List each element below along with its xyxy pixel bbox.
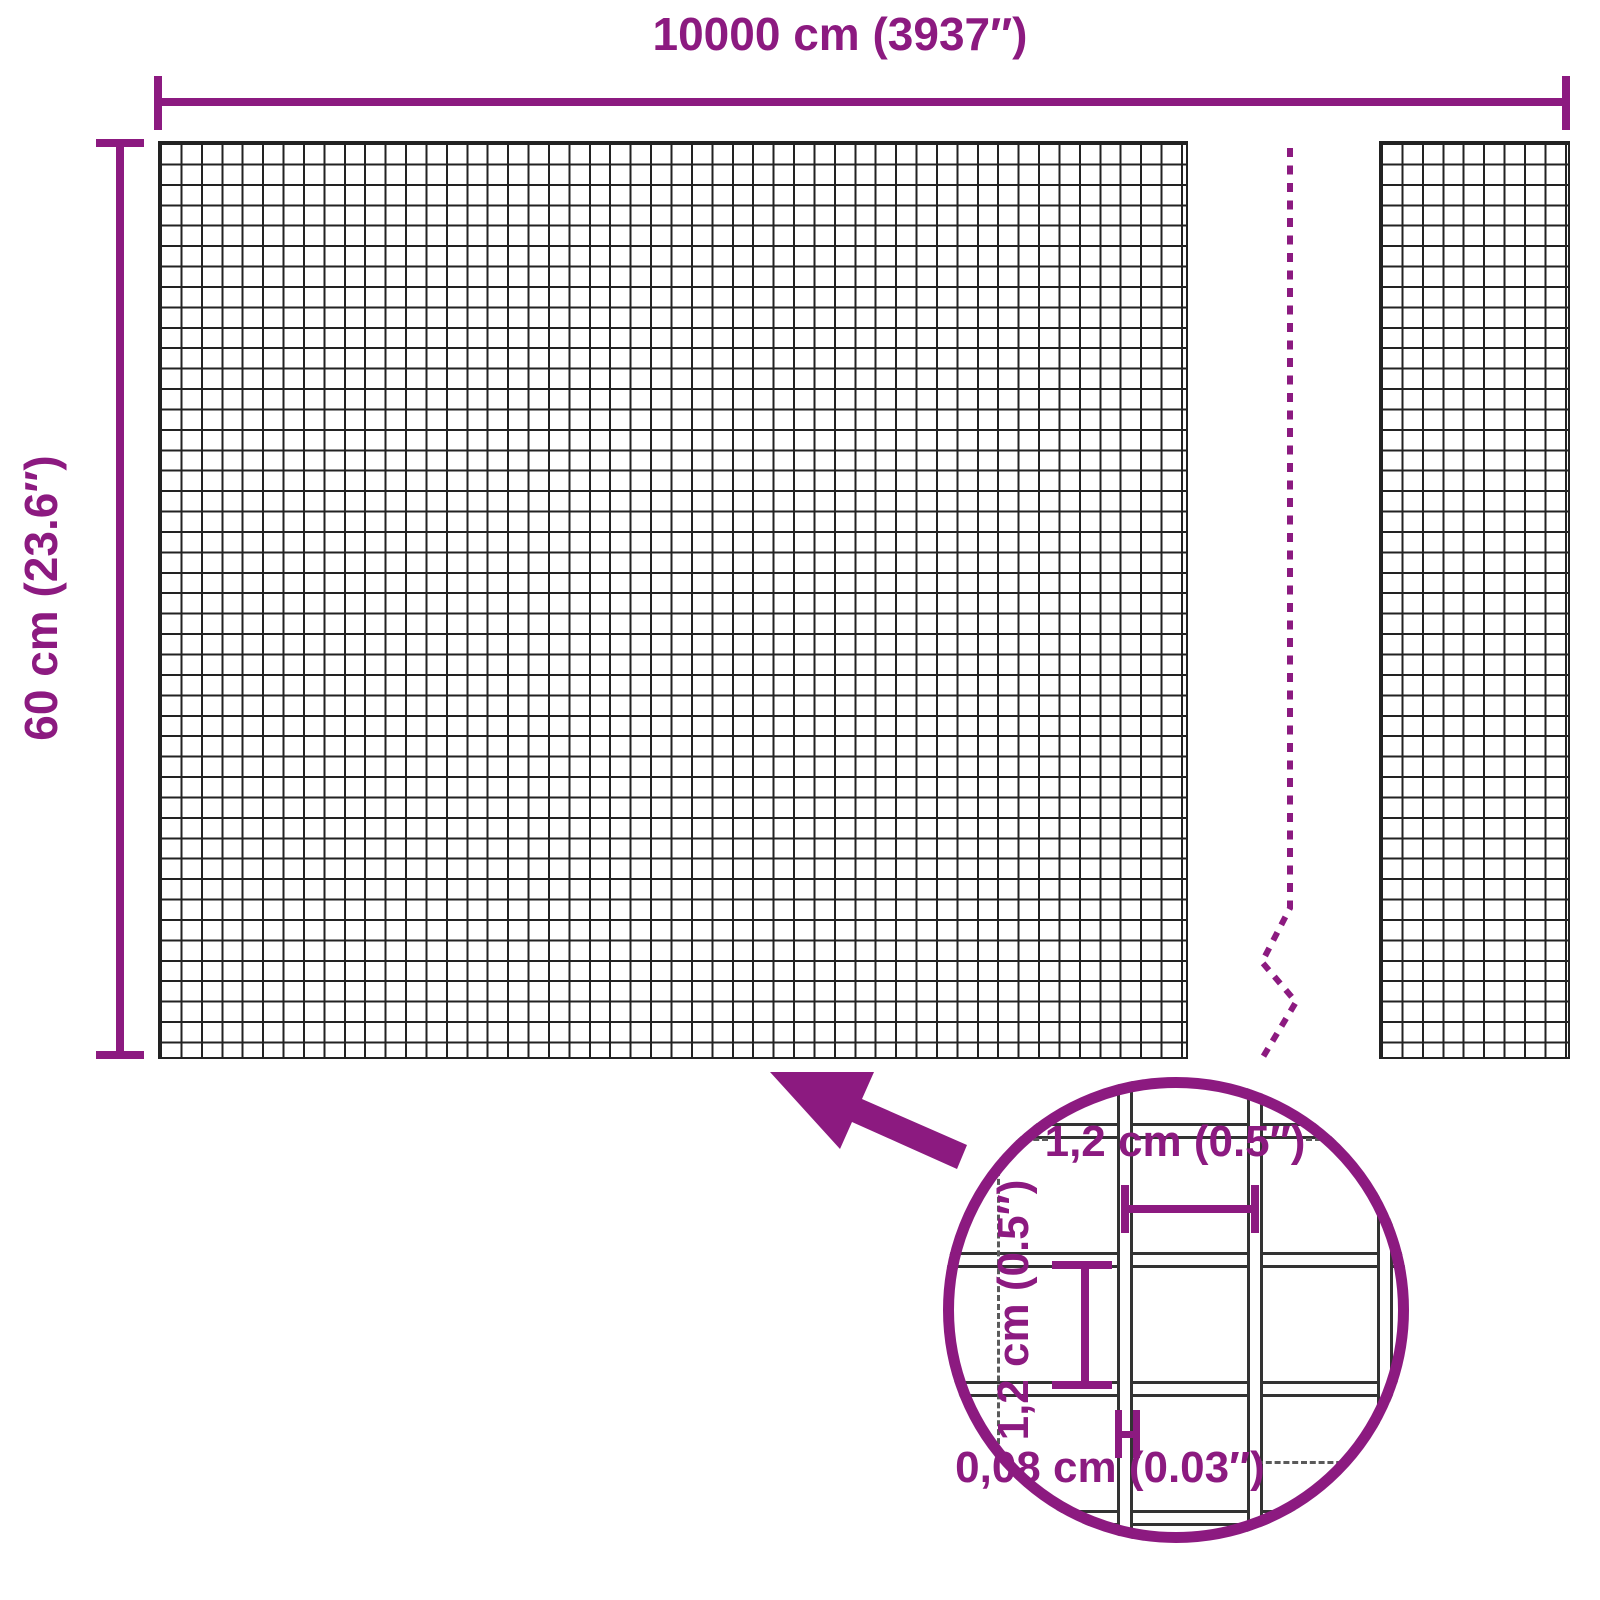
opening-width-label: 1,2 cm (0.5″) (975, 1119, 1375, 1165)
product-dimension-diagram: 10000 cm (3937″) 60 cm (23.6″) (0, 0, 1600, 1600)
wire-diameter-marker-cross (1115, 1431, 1140, 1438)
break-line-path (1262, 148, 1296, 1057)
wire-diameter-label: 0,08 cm (0.03″) (910, 1445, 1310, 1491)
zoom-arrow-icon (770, 1072, 967, 1169)
opening-height-marker-tick-top (1052, 1261, 1112, 1269)
opening-width-marker (1125, 1205, 1255, 1213)
opening-height-marker-tick-bottom (1052, 1381, 1112, 1389)
opening-width-marker-tick-right (1251, 1185, 1259, 1233)
opening-width-marker-tick-left (1121, 1185, 1129, 1233)
opening-height-marker (1081, 1265, 1089, 1385)
